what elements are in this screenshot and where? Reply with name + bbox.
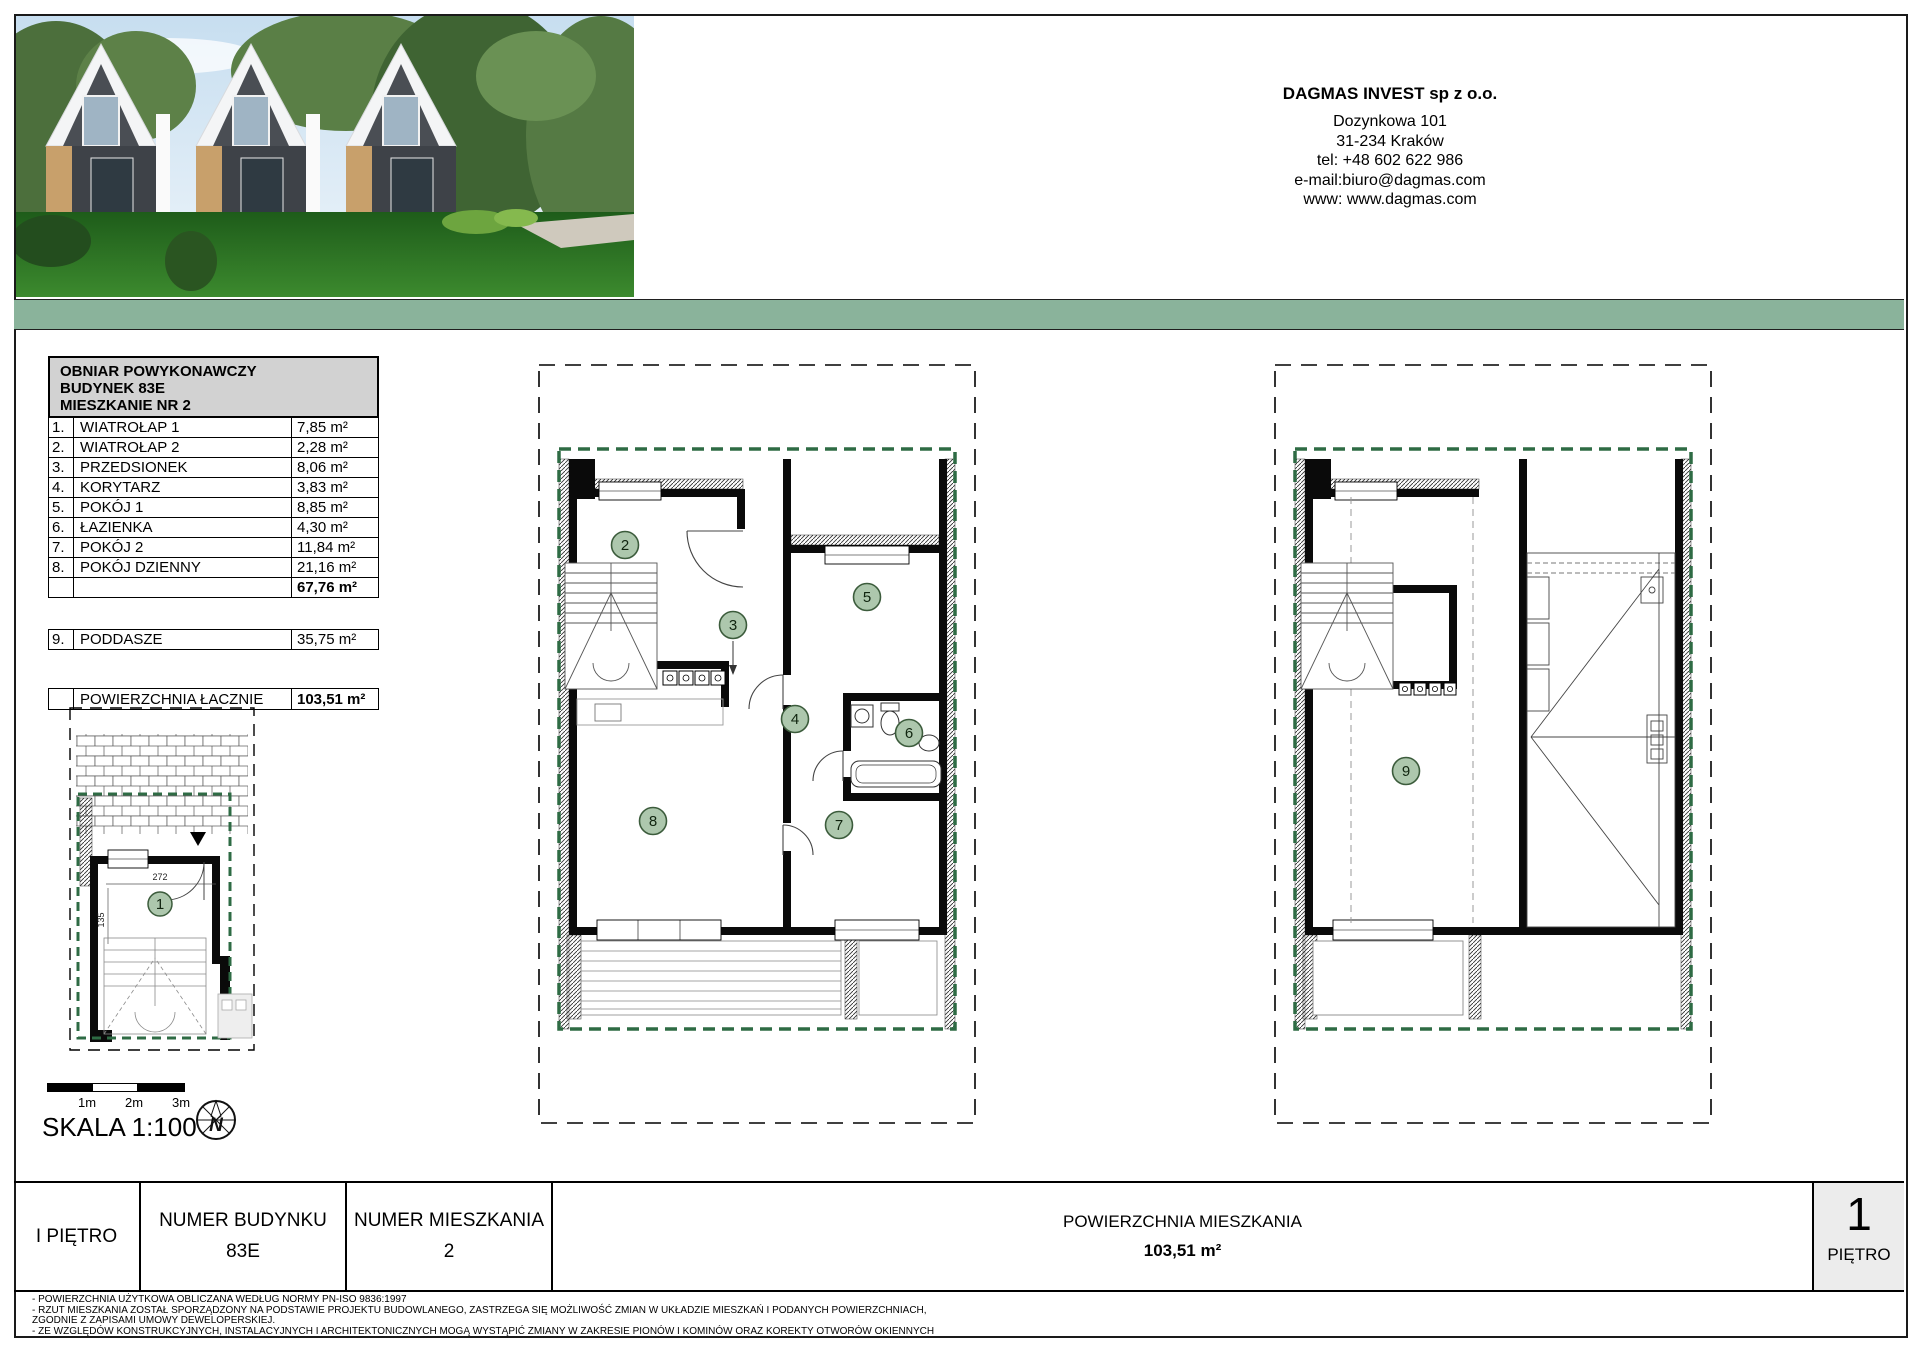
table-row: 1. WIATROŁAP 1 7,85 m² bbox=[48, 417, 379, 438]
company-website: www: www.dagmas.com bbox=[1150, 190, 1630, 210]
floor-label: I PIĘTRO bbox=[36, 1226, 117, 1248]
row-no: 7. bbox=[49, 538, 74, 557]
table-row: 7. POKÓJ 2 11,84 m² bbox=[48, 537, 379, 558]
room-number-5: 5 bbox=[863, 589, 871, 606]
row-no: 3. bbox=[49, 458, 74, 477]
stairs-ghost bbox=[104, 938, 206, 1034]
roof-plan bbox=[1527, 553, 1675, 927]
company-phone: tel: +48 602 622 986 bbox=[1150, 151, 1630, 171]
table-row: 2. WIATROŁAP 2 2,28 m² bbox=[48, 437, 379, 458]
entry-arrow bbox=[190, 832, 206, 846]
row-no: 5. bbox=[49, 498, 74, 517]
table-row: 3. PRZEDSIONEK 8,06 m² bbox=[48, 457, 379, 478]
footer-building-cell: NUMER BUDYNKU 83E bbox=[141, 1183, 347, 1290]
table-row: 5. POKÓJ 1 8,85 m² bbox=[48, 497, 379, 518]
table-row: 4. KORYTARZ 3,83 m² bbox=[48, 477, 379, 498]
row-name: PRZEDSIONEK bbox=[74, 458, 292, 477]
apartment-area-label: POWIERZCHNIA MIESZKANIA bbox=[1063, 1212, 1302, 1232]
room-number-2: 2 bbox=[621, 537, 629, 554]
company-address1: Dozynkowa 101 bbox=[1150, 112, 1630, 132]
table-row: 8. POKÓJ DZIENNY 21,16 m² bbox=[48, 557, 379, 578]
room-number-7: 7 bbox=[835, 817, 843, 834]
row-name: POKÓJ 2 bbox=[74, 538, 292, 557]
balcony bbox=[1313, 941, 1463, 1015]
attic-row-table: 9. PODDASZE 35,75 m² bbox=[48, 629, 379, 650]
scale-bar-segment bbox=[138, 1083, 185, 1092]
stairs bbox=[565, 563, 657, 689]
row-area: 11,84 m² bbox=[292, 538, 378, 557]
scale-tick-1m: 1m bbox=[78, 1095, 96, 1110]
first-floor-plan: 2 3 5 4 6 8 7 bbox=[537, 363, 977, 1125]
note-line: ZGODNIE Z ZAPISAMI UMOWY DEWELOPERSKIEJ. bbox=[32, 1316, 1532, 1327]
row-name: WIATROŁAP 2 bbox=[74, 438, 292, 457]
subtotal-area: 67,76 m² bbox=[292, 578, 378, 597]
scale-bar-segment bbox=[92, 1083, 138, 1092]
table-title-line1: OBNIAR POWYKONAWCZY bbox=[60, 363, 369, 380]
terrace-decking bbox=[581, 941, 937, 1015]
stairs bbox=[1301, 563, 1393, 689]
row-no: 6. bbox=[49, 518, 74, 537]
area-table-header: OBNIAR POWYKONAWCZY BUDYNEK 83E MIESZKAN… bbox=[48, 356, 379, 418]
row-name: PODDASZE bbox=[74, 630, 292, 649]
row-area: 8,85 m² bbox=[292, 498, 378, 517]
attic-floor-plan: 9 bbox=[1273, 363, 1713, 1125]
row-area: 8,06 m² bbox=[292, 458, 378, 477]
row-no: 1. bbox=[49, 418, 74, 437]
door-arc bbox=[166, 862, 204, 900]
row-name bbox=[74, 578, 292, 597]
table-row: 6. ŁAZIENKA 4,30 m² bbox=[48, 517, 379, 538]
row-area: 21,16 m² bbox=[292, 558, 378, 577]
company-address2: 31-234 Kraków bbox=[1150, 132, 1630, 152]
floorplan-sheet: DAGMAS INVEST sp z o.o. Dozynkowa 101 31… bbox=[0, 0, 1920, 1348]
building-number-label: NUMER BUDYNKU bbox=[159, 1210, 327, 1232]
footer-area-cell: POWIERZCHNIA MIESZKANIA 103,51 m² bbox=[553, 1183, 1812, 1290]
area-table: OBNIAR POWYKONAWCZY BUDYNEK 83E MIESZKAN… bbox=[48, 356, 379, 598]
dim-width: 272 bbox=[152, 872, 167, 882]
room-number-9: 9 bbox=[1402, 763, 1410, 780]
company-name: DAGMAS INVEST sp z o.o. bbox=[1150, 84, 1630, 104]
room-number-4: 4 bbox=[791, 711, 799, 728]
knee-wall-lines bbox=[1351, 497, 1473, 923]
compass-rose: N bbox=[194, 1098, 238, 1142]
row-no: 2. bbox=[49, 438, 74, 457]
company-email: e-mail:biuro@dagmas.com bbox=[1150, 171, 1630, 191]
floor-big-number: 1 bbox=[1846, 1189, 1872, 1239]
table-title-line3: MIESZKANIE NR 2 bbox=[60, 397, 369, 414]
ground-floor-fragment-plan: 272 135 1 bbox=[68, 706, 258, 1054]
walls bbox=[569, 459, 947, 935]
row-area: 3,83 m² bbox=[292, 478, 378, 497]
door-arcs bbox=[687, 531, 843, 855]
footer-floor-cell: I PIĘTRO bbox=[14, 1183, 141, 1290]
paving-brick-area bbox=[76, 734, 248, 834]
scale-tick-3m: 3m bbox=[172, 1095, 190, 1110]
note-line: - POWIERZCHNIA UŻYTKOWA OBLICZANA WEDŁUG… bbox=[32, 1295, 1532, 1306]
scale-label: SKALA 1:100 bbox=[42, 1112, 197, 1143]
row-no bbox=[49, 578, 74, 597]
scale-tick-2m: 2m bbox=[125, 1095, 143, 1110]
compass-north-letter: N bbox=[209, 1115, 224, 1136]
footer-floor-number-box: 1 PIĘTRO bbox=[1812, 1183, 1904, 1290]
row-name: KORYTARZ bbox=[74, 478, 292, 497]
footer-bottom-border bbox=[14, 1290, 1904, 1292]
room-badges: 2 3 5 4 6 8 7 bbox=[612, 532, 923, 839]
table-subtotal-row: 67,76 m² bbox=[48, 577, 379, 598]
row-no: 9. bbox=[49, 630, 74, 649]
room-number-3: 3 bbox=[729, 617, 737, 634]
row-no: 8. bbox=[49, 558, 74, 577]
company-info: DAGMAS INVEST sp z o.o. Dozynkowa 101 31… bbox=[1150, 84, 1630, 210]
green-divider-bar bbox=[14, 299, 1904, 330]
scale-bar-segment bbox=[47, 1083, 92, 1092]
table-row: 9. PODDASZE 35,75 m² bbox=[48, 629, 379, 650]
row-area: 35,75 m² bbox=[292, 630, 378, 649]
legal-notes: - POWIERZCHNIA UŻYTKOWA OBLICZANA WEDŁUG… bbox=[32, 1295, 1532, 1337]
floor-big-label: PIĘTRO bbox=[1827, 1245, 1890, 1265]
development-photo bbox=[16, 16, 634, 297]
apartment-number-value: 2 bbox=[444, 1241, 455, 1263]
room-number-6: 6 bbox=[905, 725, 913, 742]
table-title-line2: BUDYNEK 83E bbox=[60, 380, 369, 397]
bathroom-fixtures bbox=[851, 703, 941, 787]
room-number-8: 8 bbox=[649, 813, 657, 830]
apartment-area-value: 103,51 m² bbox=[1144, 1241, 1222, 1261]
footer-apartment-cell: NUMER MIESZKANIA 2 bbox=[347, 1183, 553, 1290]
row-no: 4. bbox=[49, 478, 74, 497]
total-area: 103,51 m² bbox=[292, 689, 378, 709]
row-name: POKÓJ DZIENNY bbox=[74, 558, 292, 577]
building-number-value: 83E bbox=[226, 1241, 260, 1263]
kitchen-ghost bbox=[218, 994, 252, 1038]
row-name: POKÓJ 1 bbox=[74, 498, 292, 517]
row-area: 7,85 m² bbox=[292, 418, 378, 437]
room-number-1: 1 bbox=[156, 896, 164, 913]
row-name: ŁAZIENKA bbox=[74, 518, 292, 537]
row-area: 4,30 m² bbox=[292, 518, 378, 537]
note-line: - ZE WZGLĘDÓW KONSTRUKCYJNYCH, INSTALACY… bbox=[32, 1327, 1532, 1338]
apartment-number-label: NUMER MIESZKANIA bbox=[354, 1210, 544, 1232]
row-name: WIATROŁAP 1 bbox=[74, 418, 292, 437]
dim-height: 135 bbox=[96, 912, 106, 927]
row-area: 2,28 m² bbox=[292, 438, 378, 457]
